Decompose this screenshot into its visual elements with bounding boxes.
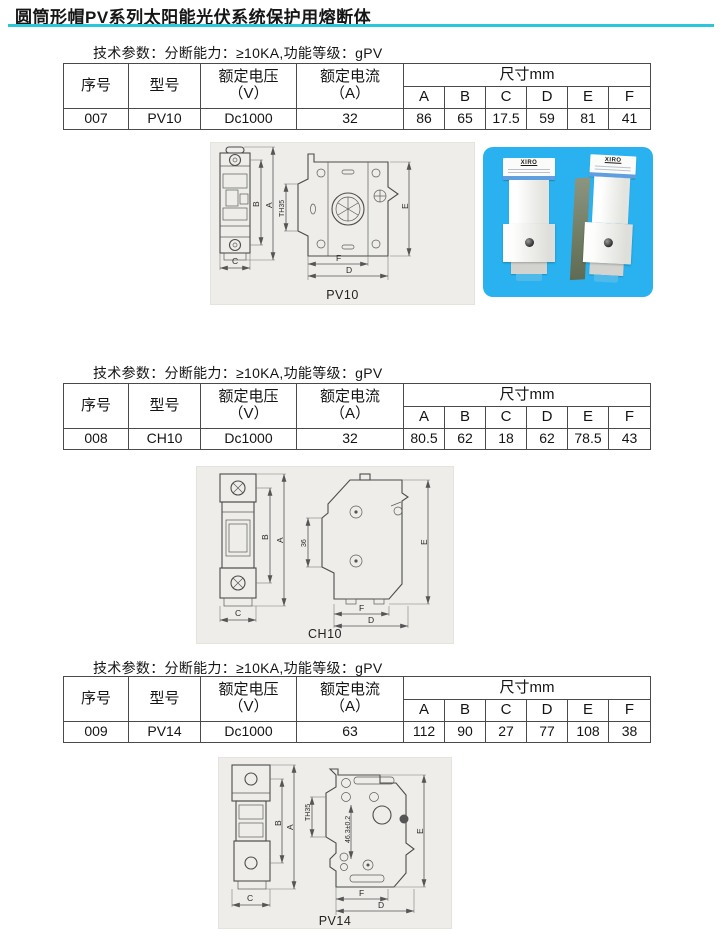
spec-table-pv14: 序号 型号 额定电压 （V） 额定电流 （A） 尺寸mm A B C D E F…: [63, 676, 651, 743]
dim-header-cell: E: [568, 87, 609, 109]
dim-header-cell: A: [404, 87, 445, 109]
dim-label-rail: TH35: [279, 200, 286, 217]
dim-header-cell: C: [486, 87, 527, 109]
current-header-line1: 额定电流: [297, 69, 403, 86]
dim-label-rail: TH35: [305, 804, 312, 821]
dim-value-cell: 108: [568, 722, 609, 743]
col-header-voltage: 额定电压 （V）: [201, 64, 297, 109]
col-header-model: 型号: [129, 677, 201, 722]
table-row: 007 PV10 Dc1000 32 86 65 17.5 59 81 41: [64, 109, 651, 130]
dim-header-cell: C: [486, 700, 527, 722]
dim-header-cell: A: [404, 407, 445, 429]
dim-header-cell: D: [527, 407, 568, 429]
label-detail-line: [508, 169, 550, 170]
dim-label-a: A: [275, 537, 285, 543]
voltage-cell: Dc1000: [201, 429, 297, 450]
col-header-current: 额定电流 （A）: [297, 64, 404, 109]
dim-value-cell: 78.5: [568, 429, 609, 450]
holder-foot: [516, 274, 542, 281]
dim-header-cell: F: [609, 87, 651, 109]
dim-value-cell: 86: [404, 109, 445, 130]
voltage-cell: Dc1000: [201, 109, 297, 130]
dim-label-b: B: [251, 201, 261, 207]
pv14-front-view: B A C: [232, 765, 296, 907]
dim-value-cell: 112: [404, 722, 445, 743]
dim-label-b: B: [273, 820, 283, 826]
dim-value-cell: 18: [486, 429, 527, 450]
current-cell: 32: [297, 429, 404, 450]
dim-label-d: D: [346, 265, 352, 275]
dim-value-cell: 17.5: [486, 109, 527, 130]
pv10-side-view: TH35 E F D: [279, 154, 411, 280]
holder-barrel: [509, 180, 549, 224]
dim-header-cell: F: [609, 700, 651, 722]
fuse-holder-front: XIRO: [503, 158, 555, 286]
drawing-panel-pv14: B A C: [218, 757, 452, 929]
title-accent-rule: [8, 24, 714, 27]
col-header-dimensions: 尺寸mm: [404, 64, 651, 87]
col-header-dimensions: 尺寸mm: [404, 384, 651, 407]
ch10-side-view: 36 E F D: [301, 474, 430, 628]
voltage-header-line2: （V）: [201, 86, 296, 103]
current-cell: 32: [297, 109, 404, 130]
dim-label-c: C: [247, 893, 253, 903]
dim-label-b: B: [260, 534, 270, 540]
dim-label-e: E: [400, 203, 410, 209]
current-header-line2: （A）: [297, 86, 403, 103]
dim-value-cell: 77: [527, 722, 568, 743]
ch10-technical-drawing: B A C 36: [196, 466, 454, 644]
dim-header-cell: B: [445, 407, 486, 429]
dim-header-cell: D: [527, 87, 568, 109]
serial-cell: 009: [64, 722, 129, 743]
voltage-header-line1: 额定电压: [201, 389, 296, 406]
dim-value-cell: 59: [527, 109, 568, 130]
dim-label-e: E: [419, 539, 429, 545]
dim-label-f: F: [359, 603, 364, 613]
terminal-screw: [603, 238, 612, 247]
table-row: 009 PV14 Dc1000 63 112 90 27 77 108 38: [64, 722, 651, 743]
col-header-serial: 序号: [64, 384, 129, 429]
col-header-current: 额定电流 （A）: [297, 677, 404, 722]
pv14-technical-drawing: B A C: [218, 757, 452, 929]
current-header-line1: 额定电流: [297, 389, 403, 406]
model-cell: PV14: [129, 722, 201, 743]
product-label: XIRO: [503, 158, 555, 180]
dim-label-f: F: [336, 253, 341, 263]
dim-header-cell: F: [609, 407, 651, 429]
drawing-panel-ch10: B A C 36: [196, 466, 454, 644]
product-label: XIRO: [589, 154, 636, 178]
tech-params-line-pv10: 技术参数：分断能力：≥10KA,功能等级：gPV: [93, 43, 382, 63]
dim-value-cell: 62: [445, 429, 486, 450]
holder-foot: [594, 274, 618, 282]
dim-label-f: F: [359, 888, 364, 898]
ch10-front-view: B A C: [220, 474, 286, 622]
spec-table-ch10: 序号 型号 额定电压 （V） 额定电流 （A） 尺寸mm A B C D E F…: [63, 383, 651, 450]
dim-label-rail: 36: [301, 539, 308, 547]
dim-header-cell: B: [445, 87, 486, 109]
label-detail-line: [594, 168, 631, 171]
voltage-header-line1: 额定电压: [201, 682, 296, 699]
dim-value-cell: 41: [609, 109, 651, 130]
current-cell: 63: [297, 722, 404, 743]
model-cell: CH10: [129, 429, 201, 450]
dim-label-c: C: [232, 256, 238, 266]
dim-value-cell: 90: [445, 722, 486, 743]
current-header-line1: 额定电流: [297, 682, 403, 699]
voltage-header-line1: 额定电压: [201, 69, 296, 86]
dim-label-a: A: [285, 824, 295, 830]
dim-label-c: C: [235, 608, 241, 618]
serial-cell: 007: [64, 109, 129, 130]
pv14-side-view: TH35 46.3±0.2 E F D: [305, 769, 426, 915]
dim-label-d: D: [368, 615, 374, 625]
voltage-cell: Dc1000: [201, 722, 297, 743]
table-row: 008 CH10 Dc1000 32 80.5 62 18 62 78.5 43: [64, 429, 651, 450]
dim-header-cell: D: [527, 700, 568, 722]
voltage-header-line2: （V）: [201, 699, 296, 716]
drawing-caption-pv10: PV10: [210, 288, 475, 302]
dim-value-cell: 81: [568, 109, 609, 130]
drawing-panel-pv10: B A C: [210, 142, 475, 305]
terminal-screw: [525, 238, 534, 247]
col-header-dimensions: 尺寸mm: [404, 677, 651, 700]
current-header-line2: （A）: [297, 699, 403, 716]
dim-header-cell: C: [486, 407, 527, 429]
dim-header-cell: E: [568, 700, 609, 722]
serial-cell: 008: [64, 429, 129, 450]
product-photo: XIRO XIRO: [483, 147, 653, 297]
spec-table-pv10: 序号 型号 额定电压 （V） 额定电流 （A） 尺寸mm A B C D E F…: [63, 63, 651, 130]
dim-label-e: E: [415, 828, 425, 834]
holder-body: [503, 224, 555, 262]
drawing-caption-ch10: CH10: [196, 627, 454, 641]
col-header-voltage: 额定电压 （V）: [201, 384, 297, 429]
dim-value-cell: 80.5: [404, 429, 445, 450]
dim-value-cell: 38: [609, 722, 651, 743]
tech-params-line-pv14: 技术参数：分断能力：≥10KA,功能等级：gPV: [93, 658, 382, 678]
dim-value-cell: 43: [609, 429, 651, 450]
brand-text: XIRO: [521, 160, 538, 167]
dim-header-cell: B: [445, 700, 486, 722]
dim-label-a: A: [264, 202, 274, 208]
label-detail-line: [508, 172, 550, 173]
pv10-technical-drawing: B A C: [210, 142, 475, 305]
current-header-line2: （A）: [297, 406, 403, 423]
tech-params-line-ch10: 技术参数：分断能力：≥10KA,功能等级：gPV: [93, 363, 382, 383]
holder-body: [583, 222, 633, 264]
holder-base: [511, 262, 547, 274]
dim-label-d: D: [378, 900, 384, 910]
dim-header-cell: E: [568, 407, 609, 429]
col-header-voltage: 额定电压 （V）: [201, 677, 297, 722]
col-header-serial: 序号: [64, 64, 129, 109]
pv10-front-view: B A C: [220, 147, 275, 270]
fuse-holder-side: XIRO: [572, 154, 637, 289]
drawing-caption-pv14: PV14: [218, 914, 452, 928]
dim-value-cell: 62: [527, 429, 568, 450]
datasheet-page: 圆筒形帽PV系列太阳能光伏系统保护用熔断体 技术参数：分断能力：≥10KA,功能…: [0, 0, 728, 941]
voltage-header-line2: （V）: [201, 406, 296, 423]
holder-barrel: [592, 176, 630, 224]
dim-value-cell: 65: [445, 109, 486, 130]
col-header-serial: 序号: [64, 677, 129, 722]
dim-header-cell: A: [404, 700, 445, 722]
model-cell: PV10: [129, 109, 201, 130]
col-header-model: 型号: [129, 384, 201, 429]
dim-value-cell: 27: [486, 722, 527, 743]
dim-label-extra: 46.3±0.2: [345, 816, 352, 843]
brand-text: XIRO: [605, 157, 622, 164]
col-header-model: 型号: [129, 64, 201, 109]
col-header-current: 额定电流 （A）: [297, 384, 404, 429]
